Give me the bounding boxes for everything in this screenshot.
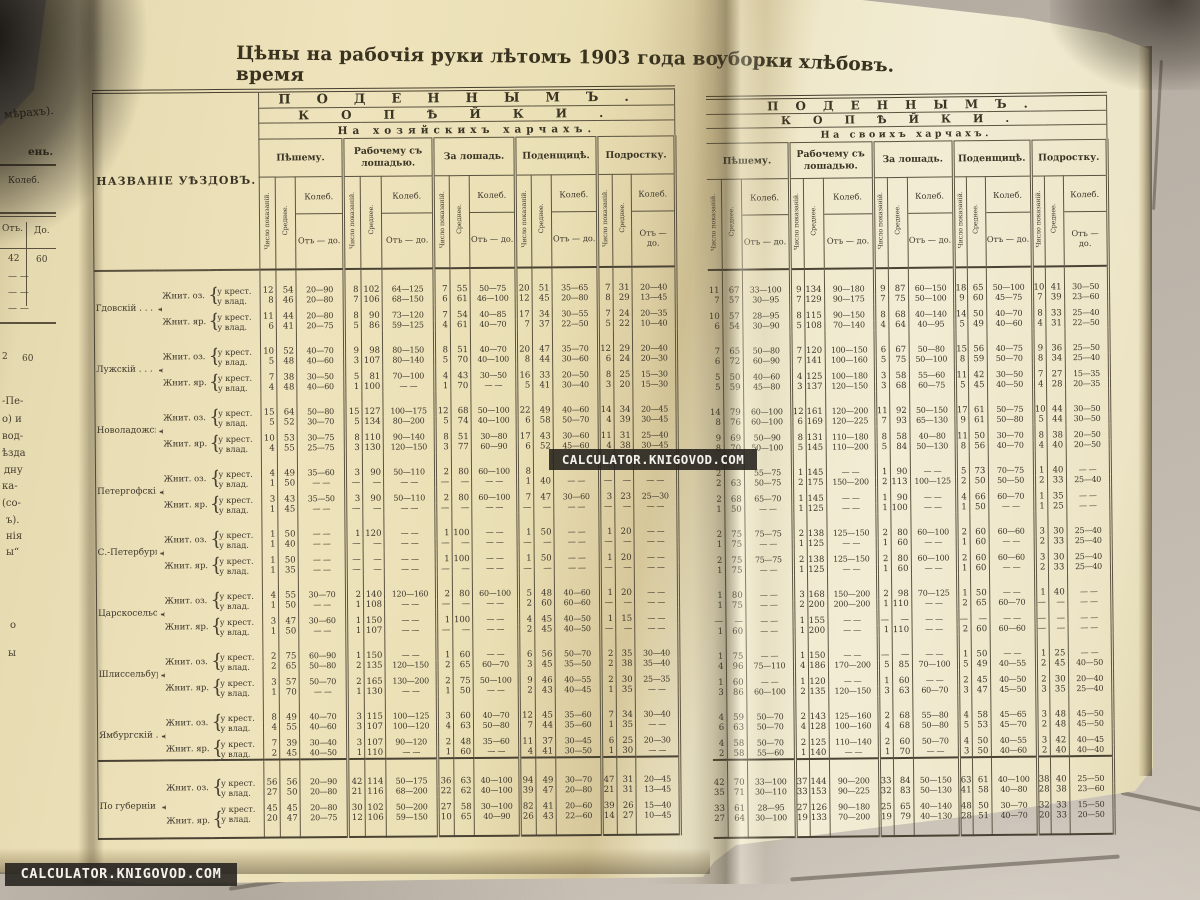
cell-range: 125—150	[826, 513, 876, 539]
cell-range: 23—60	[1064, 291, 1108, 301]
cell-average: 161	[805, 391, 825, 416]
cell-count: 3	[875, 381, 889, 391]
cell-count: 6	[434, 294, 450, 304]
cell-range: 70—75	[988, 450, 1034, 475]
cell-average: 50	[453, 686, 473, 696]
cell-count: 1	[793, 538, 807, 548]
cell-range: 35—60	[555, 695, 601, 720]
cell-range: 20—80	[300, 787, 348, 797]
cell-range: — —	[745, 610, 793, 627]
cell-count: 14	[599, 389, 614, 414]
cell-range: 120—150	[383, 442, 435, 452]
cell-average: 31	[613, 266, 632, 292]
cell-range: 50—100	[909, 354, 955, 364]
cell-range: — —	[745, 600, 793, 611]
cell-average: 33	[1047, 475, 1066, 485]
cell-range: 13—45	[636, 784, 680, 794]
cell-count: 4	[1032, 318, 1045, 328]
edge-text-fragment: нія	[6, 531, 22, 542]
cell-range: 75—110	[746, 661, 794, 672]
cell-count: 1	[792, 487, 806, 503]
cell-average: 29	[613, 328, 632, 353]
cell-range: — —	[473, 598, 519, 608]
cell-count: 4	[599, 414, 614, 424]
cell-average: 60	[970, 547, 989, 563]
crop-label: Жнит. яр.	[165, 611, 211, 637]
cell-count: 2	[347, 660, 364, 670]
cell-count: 22	[517, 390, 533, 415]
crop-label: Жнит. оз.	[165, 698, 211, 733]
cell-average: 125	[806, 503, 826, 513]
cell-range: — —	[911, 537, 957, 547]
cell-average: 90	[362, 452, 383, 477]
cell-range: 30—70	[987, 424, 1033, 440]
cell-range: 25—35	[635, 668, 679, 684]
cell-count: 1	[877, 599, 891, 609]
cell-range: 100—175	[383, 391, 435, 416]
cell-range: 60—100	[746, 687, 794, 698]
cell-average: 53	[277, 427, 297, 443]
cell-range: 40—50	[555, 624, 601, 634]
cell-count: 7	[434, 268, 450, 294]
cell-average: 165	[364, 670, 385, 686]
brace: {	[211, 611, 219, 637]
cell-range: 60—100	[743, 392, 791, 418]
cell-range: 50—200	[386, 796, 438, 812]
cell-average: 59	[968, 354, 987, 364]
cell-range: — —	[827, 609, 877, 626]
cell-count: 2	[264, 748, 280, 759]
cell-average: 50	[278, 549, 298, 565]
cell-average: 114	[365, 758, 386, 786]
brace: {	[155, 332, 162, 393]
cell-count: 2	[711, 549, 725, 565]
cell-range: — —	[1066, 500, 1110, 510]
cell-average: 175	[806, 477, 826, 487]
cell-range: 100—160	[825, 355, 875, 366]
edge-text-fragment: ъ).	[6, 515, 19, 526]
cell-average: 35	[278, 565, 298, 575]
cell-range: 40—70	[470, 319, 516, 329]
cell-average: 50	[972, 746, 991, 757]
cell-average: —	[1049, 623, 1068, 633]
cell-count: 8	[517, 354, 533, 364]
cell-range: 25—40	[1066, 474, 1110, 484]
owner-label: у крест.	[218, 549, 262, 565]
cell-average: 134	[804, 268, 824, 294]
cell-range: — —	[989, 607, 1035, 623]
owner-label: у влад.	[220, 813, 264, 837]
subheader-fluctuation: Колеб.Отъ — до.	[631, 174, 676, 266]
cell-count: 27	[714, 813, 728, 837]
cell-average: 108	[364, 599, 385, 609]
cell-range: 45—75	[986, 292, 1032, 302]
cell-range: 50—175	[386, 758, 438, 786]
cell-average: 61	[972, 757, 991, 785]
cell-range: 50—75	[744, 478, 792, 489]
cell-count: 2	[876, 477, 890, 487]
cell-range: 40—140	[908, 303, 954, 319]
cell-range: 25—40	[1068, 683, 1112, 693]
cell-count: 3	[347, 721, 364, 731]
cell-range: — —	[1066, 449, 1110, 474]
cell-average: 68	[724, 488, 744, 504]
cell-range: — —	[911, 598, 957, 608]
cell-average: 48	[1050, 719, 1069, 729]
cell-count: 1	[1034, 501, 1047, 511]
subheader-average: Среднее.	[275, 177, 296, 269]
cell-range: 50—75	[987, 389, 1033, 414]
cell-range: 20—50	[1066, 439, 1110, 449]
crop-label: Жнит. оз.	[162, 332, 208, 367]
cell-count: —	[437, 625, 453, 635]
cell-range: 40—50	[300, 748, 348, 759]
cell-range: 60—100	[471, 451, 517, 476]
cell-average: 125	[807, 538, 827, 548]
cell-range: — —	[745, 565, 793, 576]
cell-average: 113	[890, 476, 910, 486]
cell-range: 60—90	[471, 441, 517, 451]
cell-average: 45	[278, 504, 298, 514]
cell-count: 3	[712, 687, 726, 697]
cell-count: 5	[954, 319, 967, 329]
cell-range: 150—200	[827, 574, 877, 600]
subheader-count: Число показаній.	[515, 175, 532, 267]
cell-range: — —	[473, 634, 519, 659]
cell-count: 1	[262, 539, 278, 549]
cell-average: 48	[1049, 694, 1068, 719]
cell-average: 68	[889, 380, 909, 390]
cell-range: 15—30	[633, 379, 677, 389]
subheader-count: Число показаній.	[343, 176, 361, 268]
cell-range: 40—70	[986, 302, 1032, 318]
district-block: 255—751145— —190— —57370—75140— —26350—7…	[710, 449, 1111, 514]
cell-range: — —	[1067, 596, 1111, 606]
cell-range: 45—80	[743, 382, 791, 393]
cell-average: 43	[535, 685, 555, 695]
cell-range: 100—120	[385, 721, 437, 731]
cell-average: —	[453, 625, 473, 635]
cell-average: 47	[532, 329, 552, 354]
cell-count: 18	[954, 267, 967, 293]
cell-count: 4	[958, 695, 971, 720]
cell-count: 2	[263, 661, 279, 671]
cell-count: 1	[437, 609, 453, 625]
cell-count: 22	[438, 786, 454, 796]
cell-count: 9	[709, 427, 723, 443]
cell-average: 49	[967, 319, 986, 329]
edge-text-fragment: До.	[34, 226, 50, 236]
cell-average: 96	[726, 661, 746, 671]
cell-range: — —	[828, 670, 878, 687]
cell-average: 120	[808, 670, 828, 686]
cell-average: 68	[892, 695, 912, 720]
cell-count: 7	[519, 720, 535, 730]
cell-count: 3	[1037, 729, 1050, 745]
cell-count: 4	[874, 320, 888, 330]
cell-average: 48	[277, 356, 297, 366]
brace: {	[208, 306, 216, 332]
cell-count: 5	[958, 659, 971, 669]
owner-label: у крест.	[219, 636, 263, 661]
cell-average: 60	[969, 512, 988, 537]
brace: {	[209, 454, 217, 489]
edge-text-fragment: — —	[8, 272, 29, 282]
cell-average: 58	[972, 785, 991, 795]
cell-count: 9	[519, 669, 535, 685]
cell-range: 100—125	[910, 476, 956, 486]
cell-range: 40—85	[470, 303, 516, 319]
cell-range: 75—75	[744, 514, 792, 540]
cell-average: 107	[365, 731, 386, 747]
cell-average: 50	[534, 512, 554, 537]
cell-average: 36	[1045, 328, 1064, 353]
cell-count: —	[1035, 607, 1048, 623]
cell-average: 65	[970, 598, 989, 608]
cell-average: 44	[1046, 389, 1065, 414]
cell-range: 30—70	[556, 757, 602, 785]
owner-label: у влад.	[217, 417, 261, 427]
cell-range: 80—150	[382, 330, 434, 355]
cell-average: 49	[533, 390, 553, 415]
cell-range: 25—40	[1066, 510, 1110, 535]
cell-count: 14	[709, 392, 723, 417]
cell-average: 55	[277, 443, 297, 453]
cell-range: 35—60	[297, 453, 345, 478]
cell-average: 24	[613, 302, 632, 318]
cell-range: — —	[384, 538, 436, 548]
cell-average: 63	[892, 685, 912, 695]
cell-range: 20—50	[1065, 423, 1109, 439]
cell-count: 1	[262, 565, 278, 575]
cell-count: 7	[516, 319, 532, 329]
cell-average: 100	[362, 381, 383, 391]
cell-count: 6	[791, 416, 805, 426]
cell-average: 56	[535, 634, 555, 659]
cell-count: 2	[437, 670, 453, 686]
cell-range: 28—95	[742, 305, 790, 322]
cell-range: — —	[385, 686, 437, 696]
cell-range: — —	[635, 719, 679, 729]
cell-range: — —	[988, 501, 1034, 511]
brace: {	[208, 270, 216, 306]
cell-count: 16	[517, 364, 533, 380]
cell-count: 1	[347, 635, 364, 660]
cell-range: 120—150	[828, 686, 878, 697]
cell-count: 3	[345, 442, 362, 452]
cell-range: — —	[1068, 632, 1112, 657]
cell-average: 200	[808, 625, 828, 635]
cell-average: 90	[363, 487, 384, 503]
district-name: Новоладожскій .	[95, 393, 155, 454]
cell-range: 40—100	[474, 785, 520, 795]
cell-average: —	[616, 623, 635, 633]
cell-range: 20—45	[633, 389, 677, 414]
cell-count: 2	[710, 514, 724, 539]
uyezd-name-header: НАЗВАНІЕ УѢЗДОВЪ.	[93, 91, 260, 271]
cell-average: 40	[1050, 745, 1069, 756]
cell-count: 4	[712, 661, 726, 671]
cell-average: 50	[972, 795, 991, 811]
cell-average: 127	[362, 391, 383, 416]
cell-range: — —	[910, 486, 956, 502]
cell-range: 170—200	[828, 660, 878, 671]
cell-count: 12	[435, 391, 451, 416]
cell-average: 60	[892, 669, 912, 685]
brace: {	[211, 672, 219, 698]
cell-range: — —	[384, 548, 436, 564]
cell-count: 7	[708, 331, 722, 356]
subheader-count: Число показаній.	[259, 177, 276, 269]
cell-count: 2	[877, 548, 891, 564]
cell-average: 50	[970, 573, 989, 598]
column-group-header: Поденщицѣ.	[952, 140, 1030, 177]
cell-count: 2	[601, 658, 616, 668]
cell-average: 45	[280, 797, 300, 813]
cell-count: 2	[435, 452, 451, 477]
cell-range: — —	[913, 746, 959, 757]
cell-count: 82	[520, 795, 536, 811]
cell-count: 1	[348, 747, 365, 758]
cell-range: — —	[385, 599, 437, 609]
owner-label: у крест.	[216, 331, 260, 356]
cell-average: 110	[892, 624, 912, 634]
crop-label: Жнит. оз.	[164, 515, 210, 550]
cell-average: 50	[972, 730, 991, 746]
cell-range: 150—200	[826, 477, 876, 488]
cell-average: 54	[276, 269, 296, 295]
cell-count: 5	[959, 720, 972, 730]
cell-count: 5	[878, 660, 892, 670]
cell-average: 153	[809, 786, 829, 796]
cell-count: 11	[955, 364, 968, 380]
cell-range: 100—180	[825, 365, 875, 382]
cell-average: 130	[364, 686, 385, 696]
cell-average: 64	[277, 392, 297, 417]
subheader-fluctuation: Колеб.Отъ — до.	[985, 176, 1032, 266]
cell-average: 50	[723, 366, 743, 382]
cell-average: 35	[1049, 684, 1068, 694]
cell-count: 4	[795, 721, 809, 731]
cell-average: 79	[894, 811, 914, 835]
cell-count: 17	[955, 390, 968, 415]
cell-count: 6	[709, 356, 723, 366]
edge-text-fragment: ѣзда	[2, 448, 26, 459]
cell-count: 2	[347, 670, 364, 686]
cell-count: 1	[600, 511, 615, 536]
cell-count: 27	[438, 796, 454, 812]
cell-count: 1	[876, 487, 890, 503]
cell-range: 40—130	[914, 811, 960, 835]
cell-average: 43	[278, 488, 298, 504]
cell-average: 58	[889, 364, 909, 380]
cell-count: 2	[1035, 536, 1048, 546]
cell-count: 94	[520, 757, 536, 785]
cell-count: 1	[347, 625, 364, 635]
cell-average: 43	[536, 811, 556, 835]
owner-label: у влад.	[217, 356, 261, 366]
cell-average: 30	[617, 745, 636, 756]
cell-average: 72	[723, 356, 743, 366]
cell-range: — —	[744, 504, 792, 515]
crop-label: Жнит. оз.	[164, 576, 210, 611]
cell-average: 39	[614, 414, 633, 424]
cell-average: 25	[617, 729, 636, 745]
cell-count: 1	[600, 546, 615, 562]
cell-average: 129	[804, 294, 824, 304]
cell-range: — —	[910, 502, 956, 512]
cell-count: 38	[1037, 756, 1050, 784]
cell-range: — —	[1067, 571, 1111, 596]
cell-average: 100	[452, 548, 472, 564]
brace: {	[211, 637, 219, 672]
edge-text-fragment: дну	[4, 465, 23, 476]
cell-range: 35—40	[635, 658, 679, 668]
cell-average: 50	[724, 504, 744, 514]
owner-label: у крест.	[220, 759, 264, 787]
cell-range: 30—75	[297, 427, 345, 443]
cell-range: 40—55	[555, 669, 601, 685]
district-block: С.-Петербургскій{Жнит. оз.{у крест.150— …	[96, 511, 678, 577]
cell-count: 1	[437, 686, 453, 696]
cell-count: —	[601, 623, 616, 633]
cell-average: 57	[279, 671, 299, 687]
crop-label: Жнит. яр.	[163, 367, 209, 393]
brace: {	[209, 393, 217, 428]
cell-range: 40—70	[473, 695, 519, 720]
cell-range: — —	[554, 563, 600, 573]
cell-range: 50—70	[555, 634, 601, 659]
cell-range: 59—150	[386, 812, 438, 836]
cell-count: 7	[264, 732, 280, 748]
cell-average: 55	[450, 268, 470, 294]
cell-range: — —	[634, 536, 678, 546]
cell-count: 4	[261, 453, 277, 478]
cell-count: 11	[875, 391, 889, 416]
edge-text-fragment: ы“	[6, 547, 19, 558]
cell-count: 20	[516, 267, 532, 293]
cell-count: 2	[713, 748, 727, 759]
owner-label: у влад.	[219, 722, 263, 732]
cell-average: 45	[535, 659, 555, 669]
district-name: С.-Петербургскій	[96, 515, 156, 576]
cell-range: 90—200	[829, 758, 879, 787]
cell-range: 65—70	[744, 488, 792, 505]
cell-range: — —	[634, 546, 678, 562]
cell-average: 141	[805, 355, 825, 365]
cell-average: 52	[277, 417, 297, 427]
cell-count: 1	[794, 670, 808, 686]
cell-count: 1	[958, 634, 971, 659]
cell-range: 45—65	[990, 694, 1036, 719]
cell-range: 25—75	[297, 443, 345, 453]
cell-count: 3	[599, 379, 614, 389]
cell-count: 3	[519, 659, 535, 669]
cell-average: 41	[533, 380, 553, 390]
cell-average: —	[452, 477, 472, 487]
cell-average: 34	[614, 389, 633, 414]
cell-count: 6	[517, 415, 533, 425]
owner-label: у крест.	[217, 392, 261, 417]
cell-average: 75	[725, 565, 745, 575]
cell-average: 48	[277, 382, 297, 392]
cell-range: 25—50	[1069, 755, 1113, 783]
cell-count: 2	[793, 599, 807, 609]
cell-range: 125—150	[827, 548, 877, 565]
cell-count: 1	[878, 670, 892, 686]
cell-range: — —	[385, 609, 437, 625]
cell-average: 51	[450, 330, 470, 355]
